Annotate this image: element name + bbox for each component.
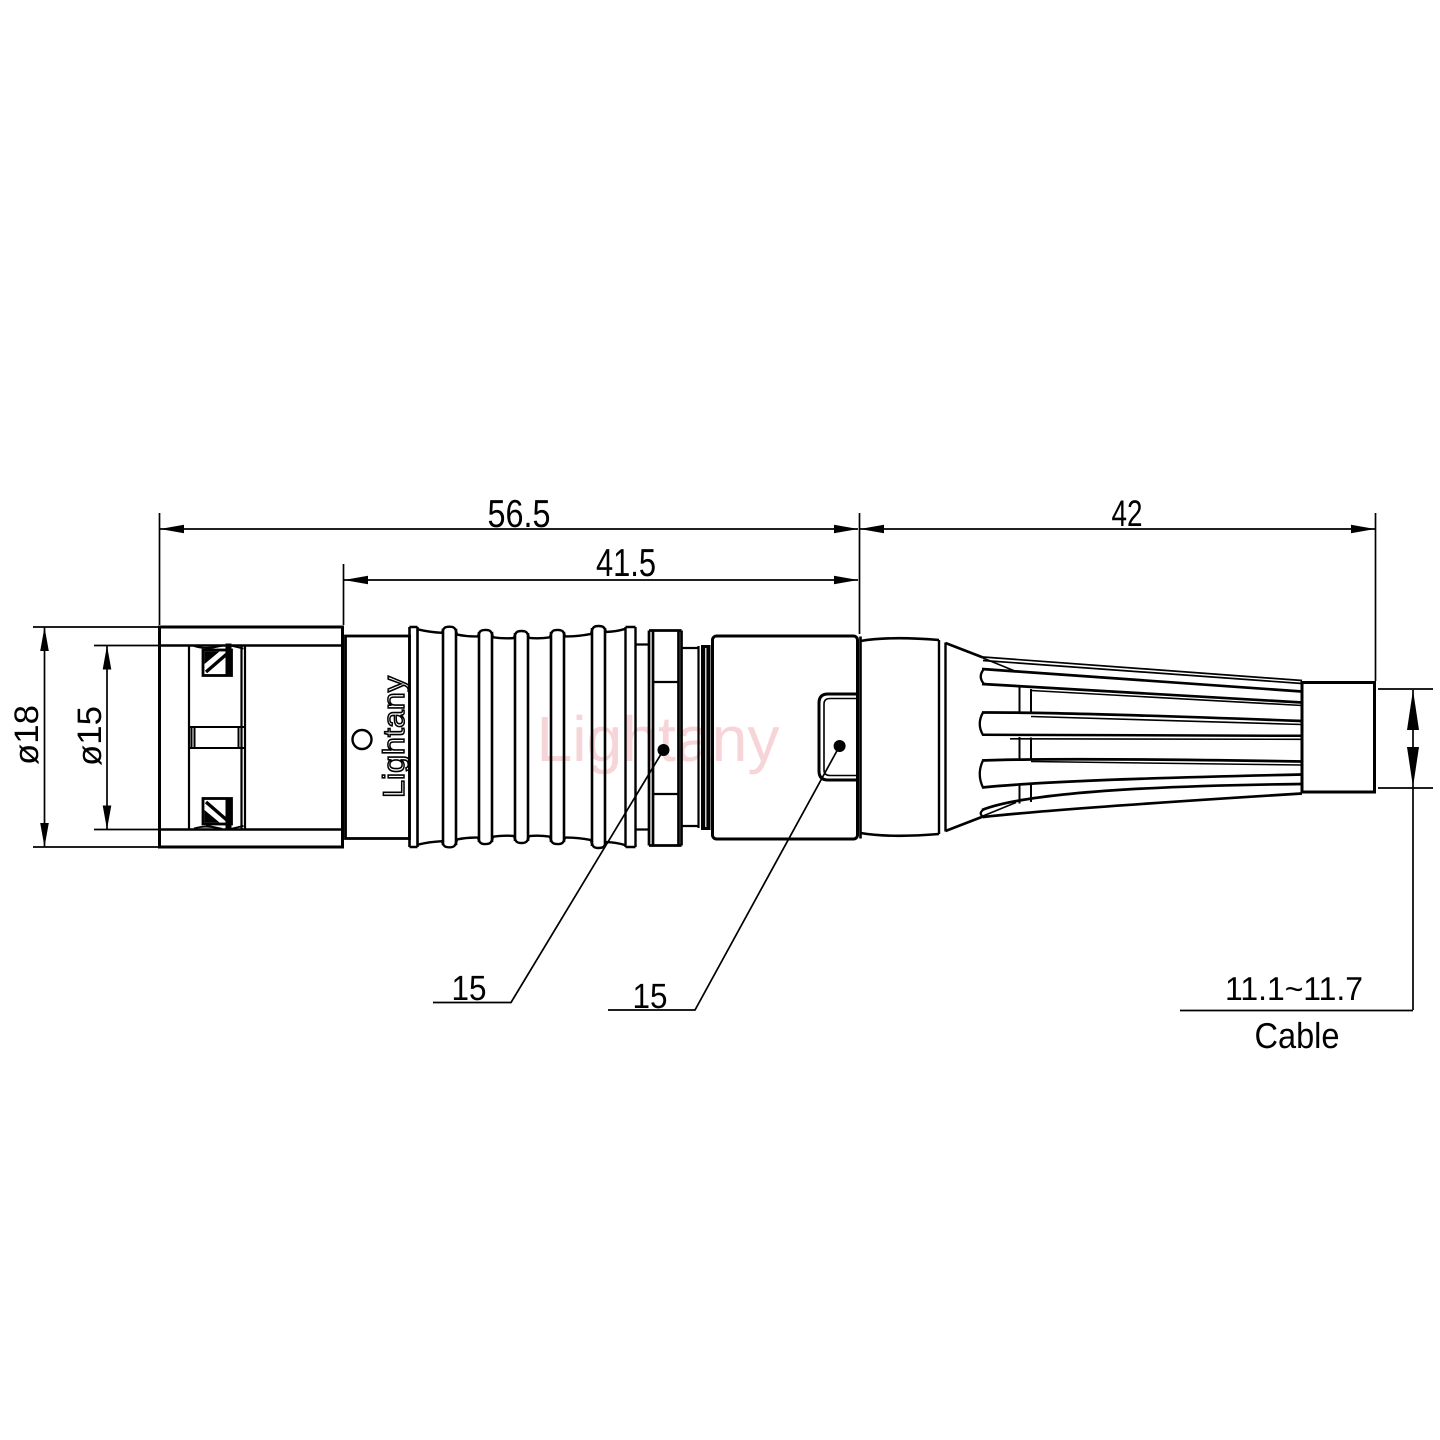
svg-text:42: 42 [1112, 493, 1143, 534]
svg-text:15: 15 [633, 977, 668, 1016]
svg-text:Cable: Cable [1255, 1015, 1340, 1056]
svg-text:11.1~11.7: 11.1~11.7 [1225, 970, 1363, 1007]
svg-text:Lightany: Lightany [537, 703, 780, 775]
svg-text:ø18: ø18 [8, 705, 46, 765]
svg-text:41.5: 41.5 [596, 542, 656, 585]
svg-text:ø15: ø15 [71, 706, 109, 766]
svg-text:15: 15 [452, 969, 487, 1008]
svg-text:56.5: 56.5 [488, 493, 551, 536]
svg-text:Lightany: Lightany [378, 676, 411, 798]
